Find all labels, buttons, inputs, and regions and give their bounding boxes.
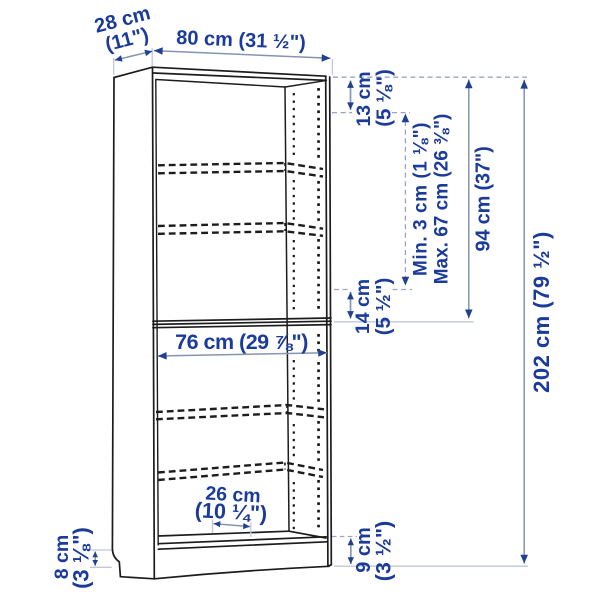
svg-text:76 cm (29 ⅞"): 76 cm (29 ⅞") xyxy=(175,330,308,354)
svg-text:Max. 67 cm (26 ⅜"): Max. 67 cm (26 ⅜") xyxy=(432,114,453,285)
svg-text:94 cm (37"): 94 cm (37") xyxy=(473,146,495,251)
svg-text:(3 ½"): (3 ½") xyxy=(372,521,396,581)
svg-text:(5 ⅛"): (5 ⅛") xyxy=(373,69,396,127)
svg-text:(3 ⅛"): (3 ⅛") xyxy=(69,527,94,589)
svg-text:Min. 3 cm (1 ⅛"): Min. 3 cm (1 ⅛") xyxy=(411,122,432,276)
svg-text:(5 ½"): (5 ½") xyxy=(372,278,395,336)
svg-text:(10 ¼"): (10 ¼") xyxy=(194,498,268,526)
svg-text:202 cm (79 ½"): 202 cm (79 ½") xyxy=(529,231,554,393)
svg-text:14 cm: 14 cm xyxy=(352,279,374,334)
